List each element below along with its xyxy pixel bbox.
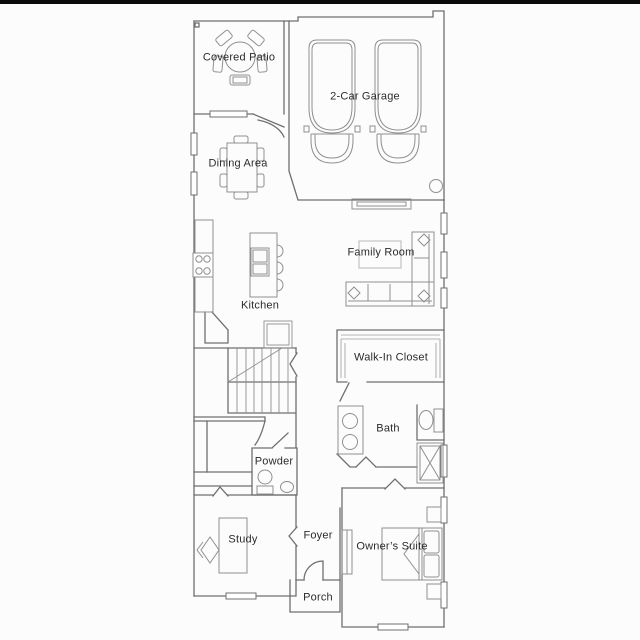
room-label-powder: Powder xyxy=(255,457,294,468)
study-furniture xyxy=(197,518,247,573)
cooktop xyxy=(193,253,213,277)
powder-door-leaf xyxy=(272,433,288,448)
island-sink xyxy=(253,264,267,274)
hall-wall xyxy=(194,417,265,421)
room-label-dining: Dining Area xyxy=(208,159,267,170)
dining-chair xyxy=(234,192,248,199)
study-window xyxy=(226,593,256,599)
study-door-mark xyxy=(213,487,228,496)
tv-console-inner xyxy=(357,202,406,206)
dining-chair xyxy=(257,174,264,187)
owners-suite-walls xyxy=(342,488,444,627)
sofa-pillow xyxy=(348,287,360,299)
floorplan-page: Covered Patio 2-Car Garage Dining Area K… xyxy=(0,0,640,640)
front-door xyxy=(304,561,323,580)
room-label-bath: Bath xyxy=(376,424,399,435)
stair-closet-inner xyxy=(267,324,289,345)
room-label-family-room: Family Room xyxy=(348,248,415,259)
room-label-garage: 2-Car Garage xyxy=(330,92,400,103)
pillow xyxy=(424,555,439,577)
island-stools xyxy=(277,245,283,291)
room-label-foyer: Foyer xyxy=(303,531,332,542)
foyer-door-mark xyxy=(289,527,297,546)
north-exterior-wall xyxy=(194,11,444,200)
coat-closet-walls xyxy=(194,472,252,486)
bath-window xyxy=(441,445,447,477)
shower xyxy=(417,443,443,483)
room-label-study: Study xyxy=(228,535,257,546)
patio-window xyxy=(210,111,247,117)
patio-chair-inner xyxy=(233,77,247,83)
dining-chair xyxy=(220,174,227,187)
water-heater xyxy=(430,180,443,193)
pantry-walls xyxy=(205,312,228,343)
room-label-walk-in-closet: Walk-In Closet xyxy=(354,353,428,364)
owners-window-2 xyxy=(441,582,447,608)
dining-door-arc xyxy=(258,120,284,137)
stair-treads xyxy=(237,348,288,413)
bath-door-mark xyxy=(356,457,376,467)
desk xyxy=(219,518,247,573)
toilet-alcove-wall xyxy=(417,405,444,440)
owners-door-mark xyxy=(385,479,405,489)
closet-door-leaf xyxy=(340,383,349,401)
family-window-1 xyxy=(441,213,447,234)
kitchen-fixtures xyxy=(193,220,283,312)
kitchen-island xyxy=(250,233,277,297)
patio-chair xyxy=(215,29,233,46)
dining-window-2 xyxy=(191,172,197,195)
stairs xyxy=(228,321,292,413)
hall-door-curve xyxy=(255,421,265,445)
desk-chair-back xyxy=(197,542,203,558)
bed-sheet-line xyxy=(419,528,422,580)
room-label-covered-patio: Covered Patio xyxy=(203,53,275,64)
stair-diagonal xyxy=(228,348,282,382)
desk-chair xyxy=(201,537,219,563)
room-label-porch: Porch xyxy=(303,593,333,604)
stair-closet-door-mark xyxy=(290,353,297,376)
family-window-3 xyxy=(441,288,447,308)
floorplan-drawing xyxy=(0,0,640,640)
bath-toilet xyxy=(419,409,443,432)
bath-fixtures xyxy=(338,406,443,483)
powder-fixtures xyxy=(257,470,294,494)
island-sink xyxy=(253,250,267,262)
room-label-owners-suite: Owner’s Suite xyxy=(356,542,427,553)
dining-window-1 xyxy=(191,133,197,155)
bed xyxy=(382,528,442,580)
family-window-2 xyxy=(441,252,447,278)
stair-closet xyxy=(264,321,292,348)
patio-chair xyxy=(247,29,265,46)
sofa-pillow xyxy=(418,234,430,246)
owners-window-3 xyxy=(378,624,408,630)
powder-sink xyxy=(281,482,294,493)
powder-toilet-tank xyxy=(257,486,273,494)
nightstand xyxy=(427,584,441,599)
corner-marker xyxy=(195,23,199,27)
room-label-kitchen: Kitchen xyxy=(241,301,279,312)
owners-window-1 xyxy=(441,497,447,523)
dining-chair xyxy=(234,136,248,143)
sofa-pillow xyxy=(418,290,430,302)
vanity-sink xyxy=(343,435,358,450)
powder-toilet-bowl xyxy=(258,470,272,484)
vanity-sink xyxy=(343,414,358,429)
owners-suite-furniture xyxy=(342,507,442,599)
nightstand xyxy=(427,507,441,522)
garage-contents xyxy=(304,40,443,193)
bath-south-wall xyxy=(337,454,417,467)
